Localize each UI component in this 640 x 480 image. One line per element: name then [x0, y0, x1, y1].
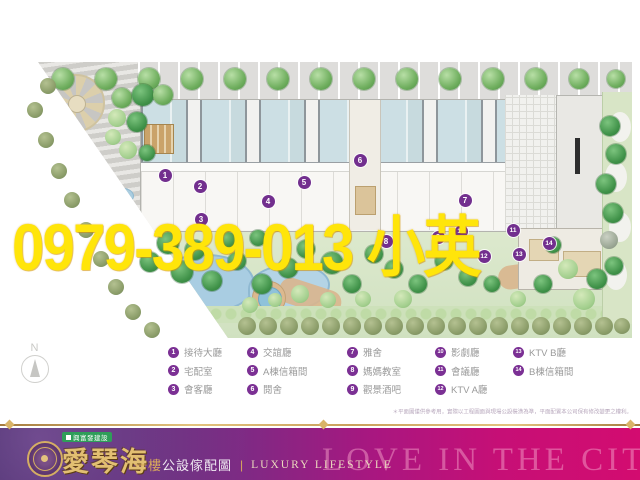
tree-icon: [607, 70, 625, 88]
facility-marker-14: 14: [543, 237, 556, 250]
tree-icon: [595, 317, 613, 335]
legend-item: 7雅舍: [347, 343, 401, 362]
legend-label: B棟信箱間: [529, 364, 573, 378]
legend-label: A棟信箱間: [263, 364, 307, 378]
legend-label: KTV B廳: [529, 345, 566, 359]
brand-emblem-icon: [27, 441, 63, 477]
flyer-page: 1234567891011121314 0979-389-013 小英 N 1接…: [0, 0, 640, 480]
legend-item: 1接待大廳: [168, 343, 222, 362]
tree-icon: [343, 317, 361, 335]
legend-label: 影劇廳: [451, 345, 480, 359]
legend-label: 接待大廳: [184, 345, 222, 359]
legend-number-badge: 3: [168, 384, 179, 395]
legend-item: 9觀景酒吧: [347, 380, 401, 399]
tree-icon: [144, 322, 160, 338]
tree-icon: [119, 141, 137, 159]
tree-icon: [553, 317, 571, 335]
legend-number-badge: 14: [513, 365, 524, 376]
legend-item: 6閱舍: [247, 380, 307, 399]
tree-icon: [27, 102, 43, 118]
tree-icon: [40, 78, 56, 94]
legend-column: 1接待大廳2宅配室3會客廳: [168, 343, 222, 399]
tree-icon: [511, 317, 529, 335]
legend-label: 會客廳: [184, 382, 213, 396]
facility-marker-11: 11: [507, 224, 520, 237]
tree-icon: [569, 69, 589, 89]
tree-icon: [181, 68, 203, 90]
legend-item: 3會客廳: [168, 380, 222, 399]
tree-icon: [614, 318, 630, 334]
compass-ring-icon: [21, 355, 49, 383]
tree-icon: [385, 317, 403, 335]
tree-icon: [439, 68, 461, 90]
legend-label: 媽媽教室: [363, 364, 401, 378]
tree-icon: [396, 68, 418, 90]
tree-icon: [427, 317, 445, 335]
legend-label: 觀景酒吧: [363, 382, 401, 396]
tree-icon: [310, 68, 332, 90]
tree-icon: [125, 304, 141, 320]
tree-icon: [469, 317, 487, 335]
facility-marker-13: 13: [513, 248, 526, 261]
tree-icon: [532, 317, 550, 335]
tree-icon: [95, 68, 117, 90]
tree-icon: [355, 291, 371, 307]
legend-number-badge: 6: [247, 384, 258, 395]
plan-title-en: LUXURY LIFESTYLE: [251, 459, 393, 471]
tree-icon: [558, 259, 578, 279]
legend-label: 閱舍: [263, 382, 282, 396]
tree-icon: [605, 257, 623, 275]
tree-icon: [322, 317, 340, 335]
tree-icon: [108, 109, 126, 127]
tree-icon: [490, 317, 508, 335]
tree-icon: [587, 269, 607, 289]
developer-logo-icon: [66, 435, 71, 440]
tree-icon: [482, 68, 504, 90]
tree-icon: [139, 145, 155, 161]
legend-column: 4交誼廳5A棟信箱間6閱舍: [247, 343, 307, 399]
legend-number-badge: 9: [347, 384, 358, 395]
tree-icon: [394, 290, 412, 308]
tree-icon: [259, 317, 277, 335]
building-b-wing: [556, 95, 606, 233]
legend-number-badge: 5: [247, 365, 258, 376]
tree-icon: [484, 276, 500, 292]
tree-icon: [364, 317, 382, 335]
tree-icon: [268, 293, 282, 307]
tree-icon: [406, 317, 424, 335]
legend-item: 14B棟信箱間: [513, 362, 573, 381]
tree-icon: [238, 317, 256, 335]
subtitle-separator: |: [240, 458, 243, 472]
tree-icon: [127, 112, 147, 132]
legend-number-badge: 10: [435, 347, 446, 358]
compass: N: [14, 342, 56, 383]
legend-column: 7雅舍8媽媽教室9觀景酒吧: [347, 343, 401, 399]
legend-label: KTV A廳: [451, 382, 487, 396]
tree-icon: [280, 317, 298, 335]
tree-icon: [132, 84, 154, 106]
facility-marker-5: 5: [298, 176, 311, 189]
tree-icon: [573, 288, 595, 310]
tree-icon: [267, 68, 289, 90]
legend-item: 4交誼廳: [247, 343, 307, 362]
legend-item: 12KTV A廳: [435, 380, 487, 399]
facility-marker-1: 1: [159, 169, 172, 182]
tree-icon: [534, 275, 552, 293]
phone-watermark: 0979-389-013 小英: [12, 194, 480, 290]
legend-item: 13KTV B廳: [513, 343, 573, 362]
tree-icon: [105, 129, 121, 145]
legend-label: 交誼廳: [263, 345, 292, 359]
tree-icon: [525, 68, 547, 90]
legend-label: 宅配室: [184, 364, 213, 378]
legend-number-badge: 13: [513, 347, 524, 358]
tree-icon: [600, 116, 620, 136]
legend-number-badge: 8: [347, 365, 358, 376]
facility-marker-6: 6: [354, 154, 367, 167]
tree-icon: [112, 88, 132, 108]
tree-icon: [574, 317, 592, 335]
legend-label: 雅舍: [363, 345, 382, 359]
legend-column: 10影劇廳11會議廳12KTV A廳: [435, 343, 487, 399]
legend-number-badge: 11: [435, 365, 446, 376]
plan-title-zh: 一樓公設傢配圖: [134, 455, 232, 474]
tree-icon: [603, 203, 623, 223]
tree-icon: [242, 297, 258, 313]
legend-item: 10影劇廳: [435, 343, 487, 362]
compass-n-label: N: [14, 342, 56, 354]
tree-icon: [320, 292, 336, 308]
tree-icon: [224, 68, 246, 90]
legend-item: 11會議廳: [435, 362, 487, 381]
disclaimer-text: ＊平面圖僅供參考用，實際以工程圖面與現場公設裝潢為準，平面配置本公司保有修改變更…: [393, 408, 632, 415]
tree-icon: [448, 317, 466, 335]
legend-column: 13KTV B廳14B棟信箱間: [513, 343, 573, 380]
legend-number-badge: 12: [435, 384, 446, 395]
tree-icon: [301, 317, 319, 335]
legend-number-badge: 2: [168, 365, 179, 376]
brand-footer: LOVE IN THE CITY 興富發建設 愛琴海 一樓公設傢配圖 | LUX…: [0, 428, 640, 480]
legend-item: 2宅配室: [168, 362, 222, 381]
tree-icon: [606, 144, 626, 164]
grid-plaza: [505, 95, 557, 231]
tree-icon: [510, 291, 526, 307]
tree-icon: [600, 231, 618, 249]
legend-number-badge: 1: [168, 347, 179, 358]
tree-icon: [38, 132, 54, 148]
compass-needle-icon: [30, 359, 40, 377]
tree-icon: [353, 68, 375, 90]
legend-item: 5A棟信箱間: [247, 362, 307, 381]
facility-legend: 1接待大廳2宅配室3會客廳4交誼廳5A棟信箱間6閱舍7雅舍8媽媽教室9觀景酒吧1…: [162, 343, 592, 401]
facility-marker-2: 2: [194, 180, 207, 193]
legend-item: 8媽媽教室: [347, 362, 401, 381]
legend-number-badge: 4: [247, 347, 258, 358]
legend-number-badge: 7: [347, 347, 358, 358]
tree-icon: [596, 174, 616, 194]
tree-icon: [51, 163, 67, 179]
footer-subtitle-row: 一樓公設傢配圖 | LUXURY LIFESTYLE: [134, 455, 393, 474]
legend-label: 會議廳: [451, 364, 480, 378]
tree-icon: [153, 85, 173, 105]
